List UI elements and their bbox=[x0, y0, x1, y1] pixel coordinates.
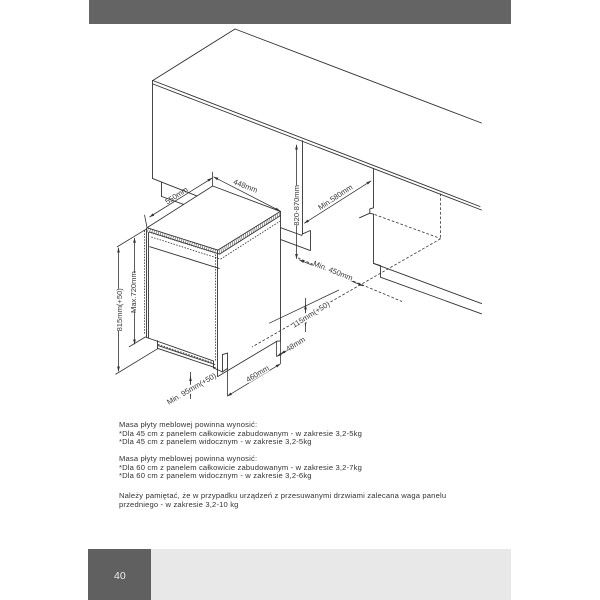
svg-text:815mm(+50): 815mm(+50) bbox=[115, 288, 124, 332]
svg-text:Min. 450mm: Min. 450mm bbox=[312, 259, 354, 283]
svg-text:Min.580mm: Min.580mm bbox=[316, 183, 354, 212]
svg-text:Min. 95mm(+50): Min. 95mm(+50) bbox=[165, 371, 218, 407]
svg-text:Max.720mm: Max.720mm bbox=[129, 271, 138, 313]
svg-text:48mm: 48mm bbox=[284, 335, 307, 354]
svg-text:448mm: 448mm bbox=[232, 177, 259, 194]
svg-text:460mm: 460mm bbox=[244, 363, 270, 384]
svg-text:820-870mm: 820-870mm bbox=[292, 185, 301, 226]
